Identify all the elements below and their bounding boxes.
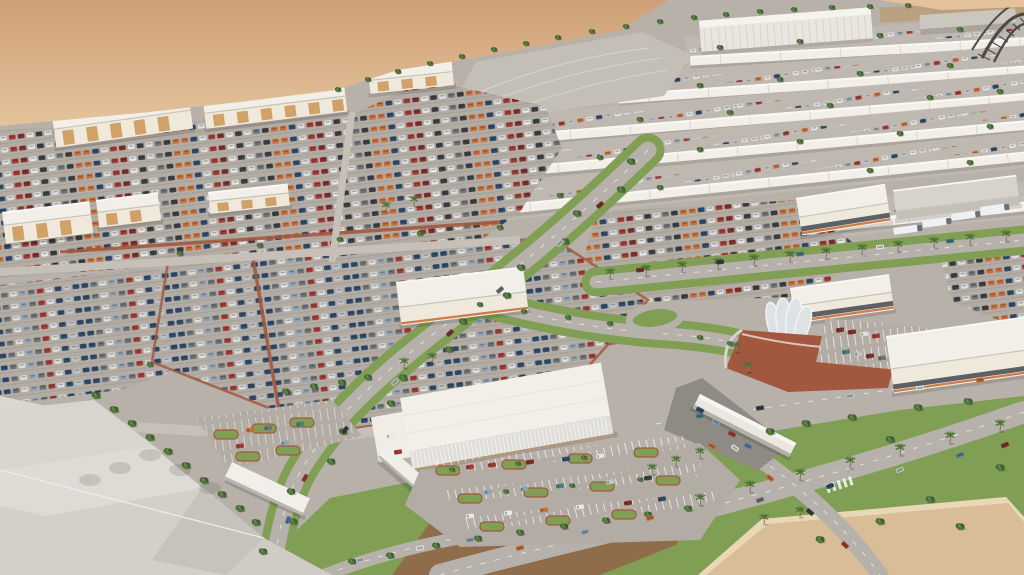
landscape-island: [252, 424, 276, 433]
landscape-island: [436, 466, 460, 475]
car: [796, 251, 804, 256]
landscape-island: [276, 446, 300, 455]
landscape-island: [236, 452, 260, 461]
landscape-island: [612, 510, 636, 519]
car: [636, 267, 644, 272]
landscape-island: [568, 454, 592, 463]
landscape-island: [656, 476, 680, 485]
tree-shadow: [139, 449, 161, 461]
tree-shadow: [79, 474, 101, 486]
landscape-island: [546, 516, 570, 525]
landscape-island: [214, 430, 238, 439]
car: [946, 238, 954, 243]
aerial-render-canvas: [0, 0, 1024, 575]
landscape-island: [480, 522, 504, 531]
tree-shadow: [199, 482, 221, 494]
tree-shadow: [109, 462, 131, 474]
car: [716, 259, 724, 264]
aerial-site-render: [0, 0, 1024, 575]
car: [876, 244, 884, 249]
landscape-island: [502, 460, 526, 469]
landscape-island: [634, 448, 658, 457]
landscape-island: [458, 494, 482, 503]
